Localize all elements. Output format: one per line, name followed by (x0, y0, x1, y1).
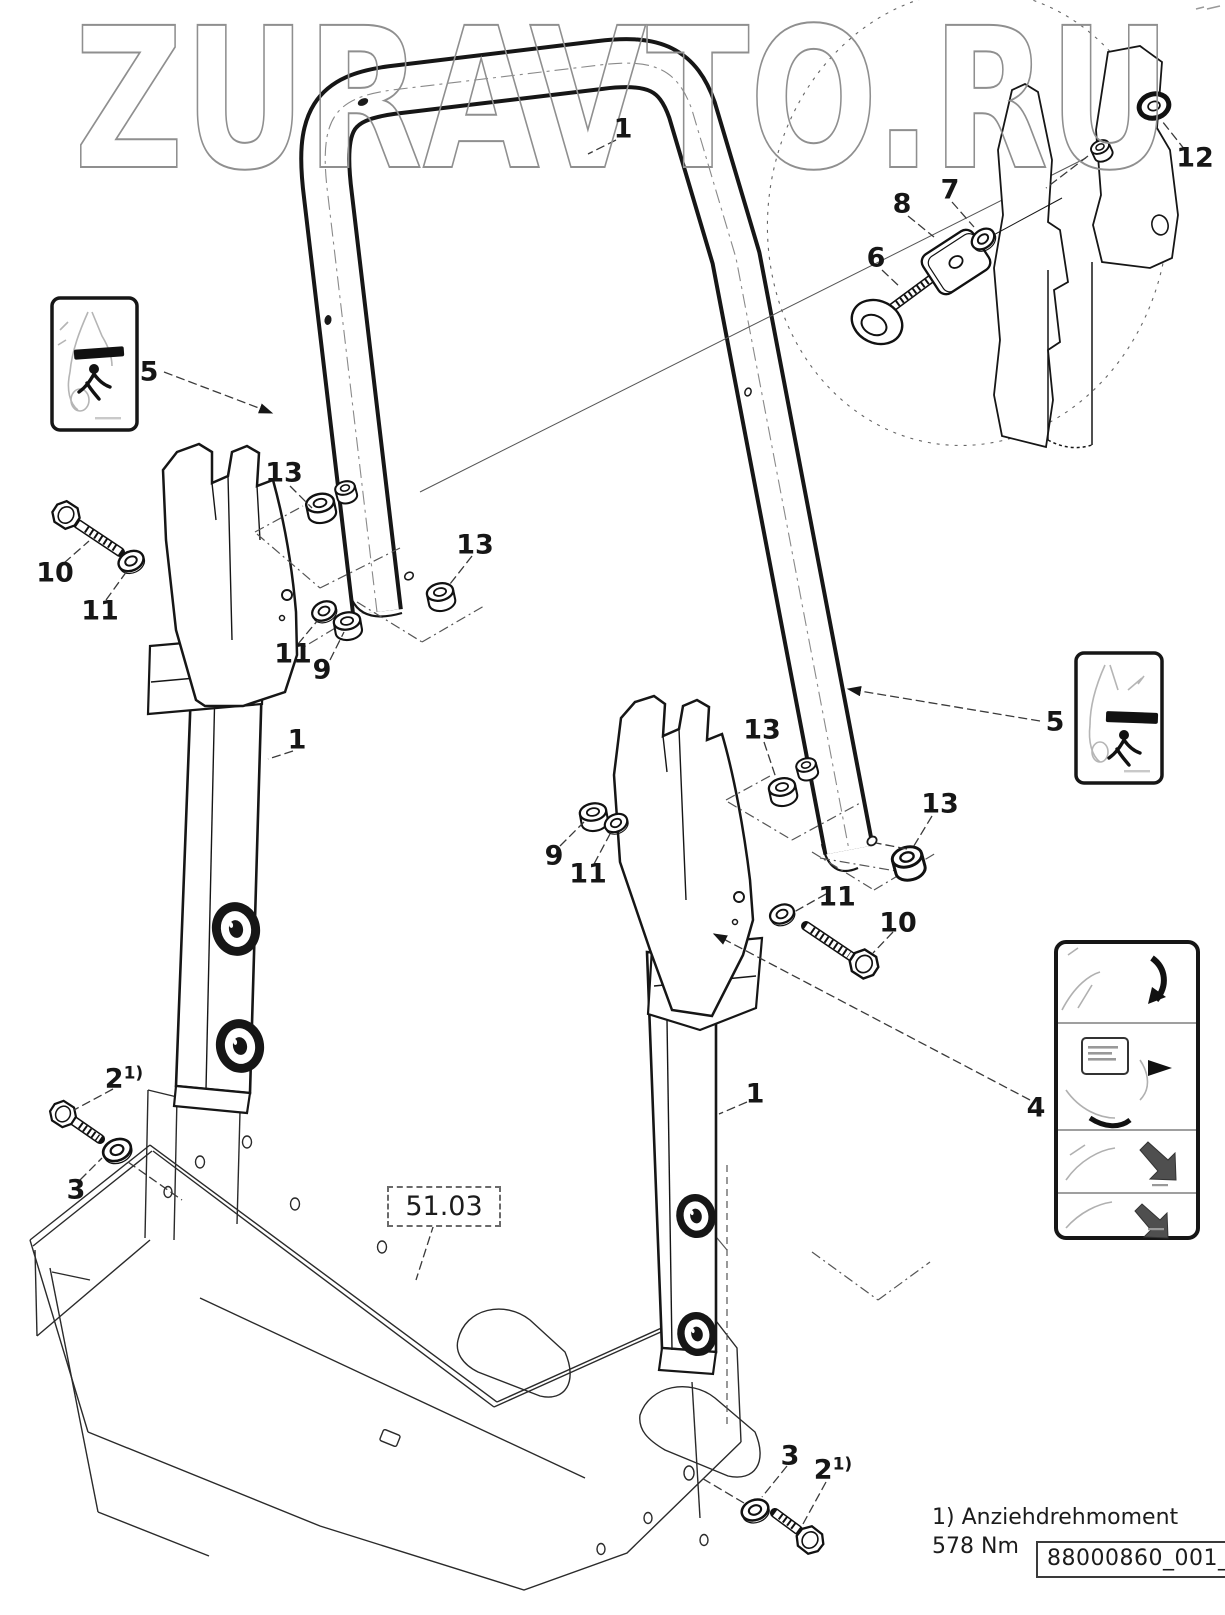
callout-washer-11-c: 11 (569, 861, 607, 888)
callout-washer-11-b: 11 (274, 641, 312, 668)
callout-post-right: 1 (746, 1081, 765, 1108)
callout-pad-8: 8 (893, 191, 912, 218)
callout-nut-9-left: 9 (313, 657, 332, 684)
flange-nut-13 (767, 776, 799, 808)
hex-flange-bolt-2-right (775, 1513, 828, 1557)
chassis-frame (30, 1090, 760, 1590)
parts-diagram-page: ZURAVTO.RU 1 12 7 8 6 5 5 13 13 10 11 11… (0, 0, 1225, 1615)
cross-reference-box: 51.03 (387, 1186, 501, 1227)
callout-washer-11-d: 11 (818, 884, 856, 911)
flange-nut-9 (332, 610, 363, 642)
washer-11 (767, 901, 798, 929)
decal-inset-panel (1082, 1038, 1128, 1074)
instruction-decal (1056, 942, 1198, 1238)
eye-bolt (845, 270, 943, 352)
callout-grommet-12: 12 (1176, 145, 1214, 172)
hex-flange-bolt-2-left (46, 1098, 100, 1139)
crush-hazard-decal-left (52, 298, 137, 430)
callout-bolt-10-right: 10 (879, 910, 917, 937)
decal-fine-print (1152, 1184, 1168, 1186)
callout-washer-3-right: 3 (781, 1443, 800, 1470)
callout-nut-13-b: 13 (456, 532, 494, 559)
document-number-box: 88000860_001_00 (1036, 1541, 1225, 1578)
support-post-right (614, 696, 762, 1374)
callout-washer-3-left: 3 (67, 1177, 86, 1204)
callout-decal-4: 4 (1027, 1095, 1046, 1122)
flange-nut-13 (304, 491, 337, 525)
callout-post-left: 1 (288, 727, 307, 754)
callout-decal-5-right: 5 (1046, 709, 1065, 736)
callout-washer-7: 7 (941, 177, 960, 204)
flange-bushing-13 (425, 581, 457, 613)
callout-bolt-2-right: 21) (814, 1457, 852, 1484)
exploded-parts-drawing (0, 0, 1225, 1615)
callout-eye-bolt-6: 6 (867, 245, 886, 272)
decal-fine-print (95, 417, 121, 419)
chassis-phantom-lines (702, 1165, 930, 1428)
callout-washer-11-a: 11 (81, 598, 119, 625)
callout-nut-13-c: 13 (743, 717, 781, 744)
roll-bar-hoop (324, 63, 879, 871)
callout-nut-9-right: 9 (545, 843, 564, 870)
hex-bolt-10-right (806, 926, 882, 982)
washer-3 (739, 1496, 772, 1527)
crush-hazard-decal-right (1076, 653, 1162, 783)
callout-bolt-2-left: 21) (105, 1066, 143, 1093)
callout-decal-5-left: 5 (140, 359, 159, 386)
decal-fine-print (1124, 770, 1150, 772)
corner-mark (1196, 6, 1220, 9)
callout-bolt-10-left: 10 (36, 560, 74, 587)
decal-fine-print (1148, 1228, 1164, 1230)
callout-nut-13-d: 13 (921, 791, 959, 818)
callout-nut-13-a: 13 (265, 460, 303, 487)
hex-bolt-10-left (49, 498, 120, 552)
support-post-left (148, 444, 297, 1113)
callout-roll-bar: 1 (614, 116, 633, 143)
